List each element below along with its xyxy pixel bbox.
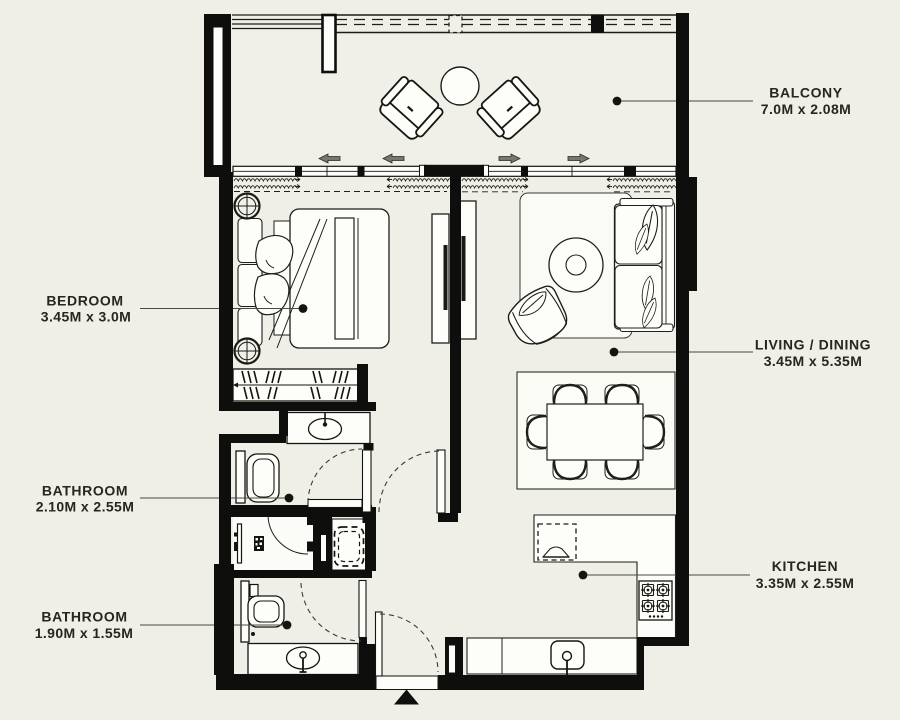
svg-text:LIVING / DINING: LIVING / DINING xyxy=(755,337,871,353)
svg-text:7.0M x 2.08M: 7.0M x 2.08M xyxy=(761,101,851,117)
svg-text:1.90M x 1.55M: 1.90M x 1.55M xyxy=(35,625,134,641)
svg-text:BATHROOM: BATHROOM xyxy=(42,483,128,499)
svg-text:3.35M x 2.55M: 3.35M x 2.55M xyxy=(756,575,855,591)
svg-text:BEDROOM: BEDROOM xyxy=(46,293,123,309)
svg-text:2.10M x 2.55M: 2.10M x 2.55M xyxy=(36,499,135,515)
svg-text:KITCHEN: KITCHEN xyxy=(772,558,838,574)
svg-text:BALCONY: BALCONY xyxy=(769,85,842,101)
svg-text:3.45M x 3.0M: 3.45M x 3.0M xyxy=(41,309,131,325)
svg-text:BATHROOM: BATHROOM xyxy=(41,609,127,625)
svg-text:3.45M x 5.35M: 3.45M x 5.35M xyxy=(764,353,863,369)
